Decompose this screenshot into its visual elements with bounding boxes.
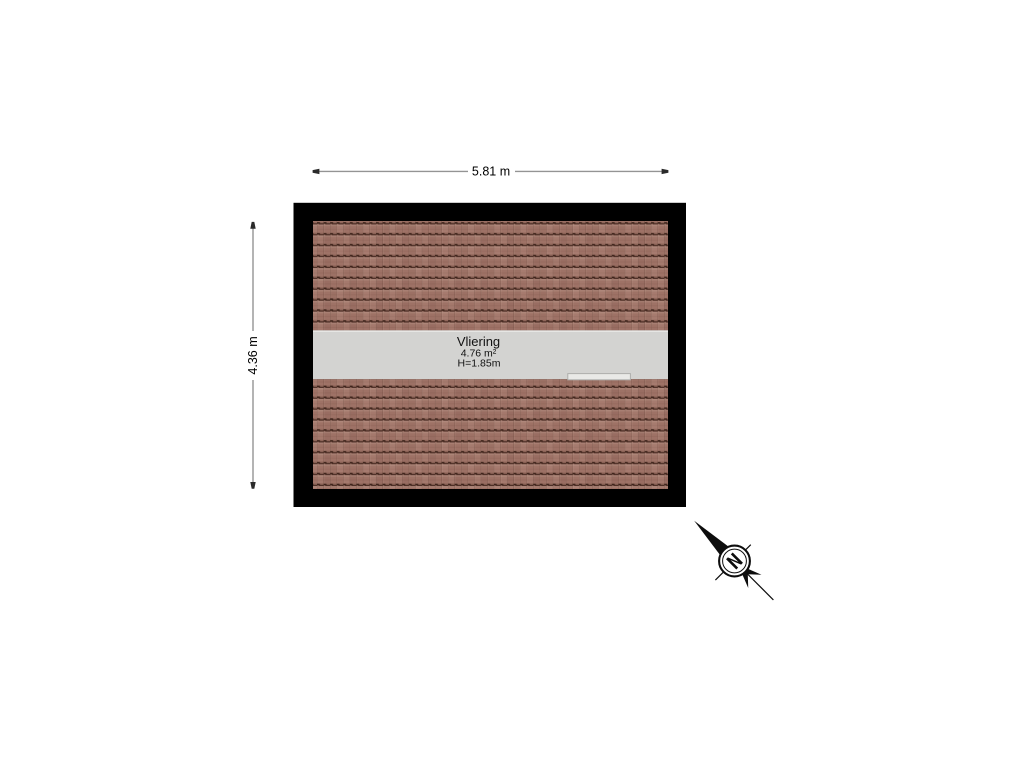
- svg-text:5.81 m: 5.81 m: [472, 165, 510, 179]
- svg-text:4.36 m: 4.36 m: [246, 336, 260, 374]
- svg-text:H=1.85m: H=1.85m: [458, 358, 501, 370]
